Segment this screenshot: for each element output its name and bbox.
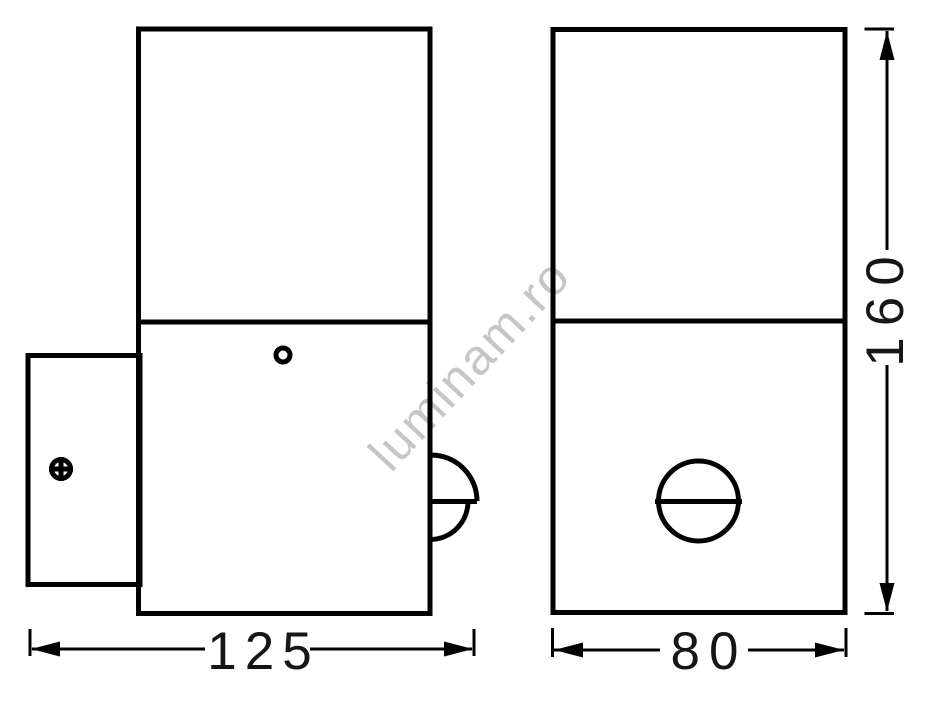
svg-text:luminam.ro: luminam.ro bbox=[358, 248, 581, 482]
svg-text:160: 160 bbox=[856, 245, 915, 366]
svg-text:80: 80 bbox=[671, 622, 748, 681]
svg-text:125: 125 bbox=[207, 622, 319, 681]
